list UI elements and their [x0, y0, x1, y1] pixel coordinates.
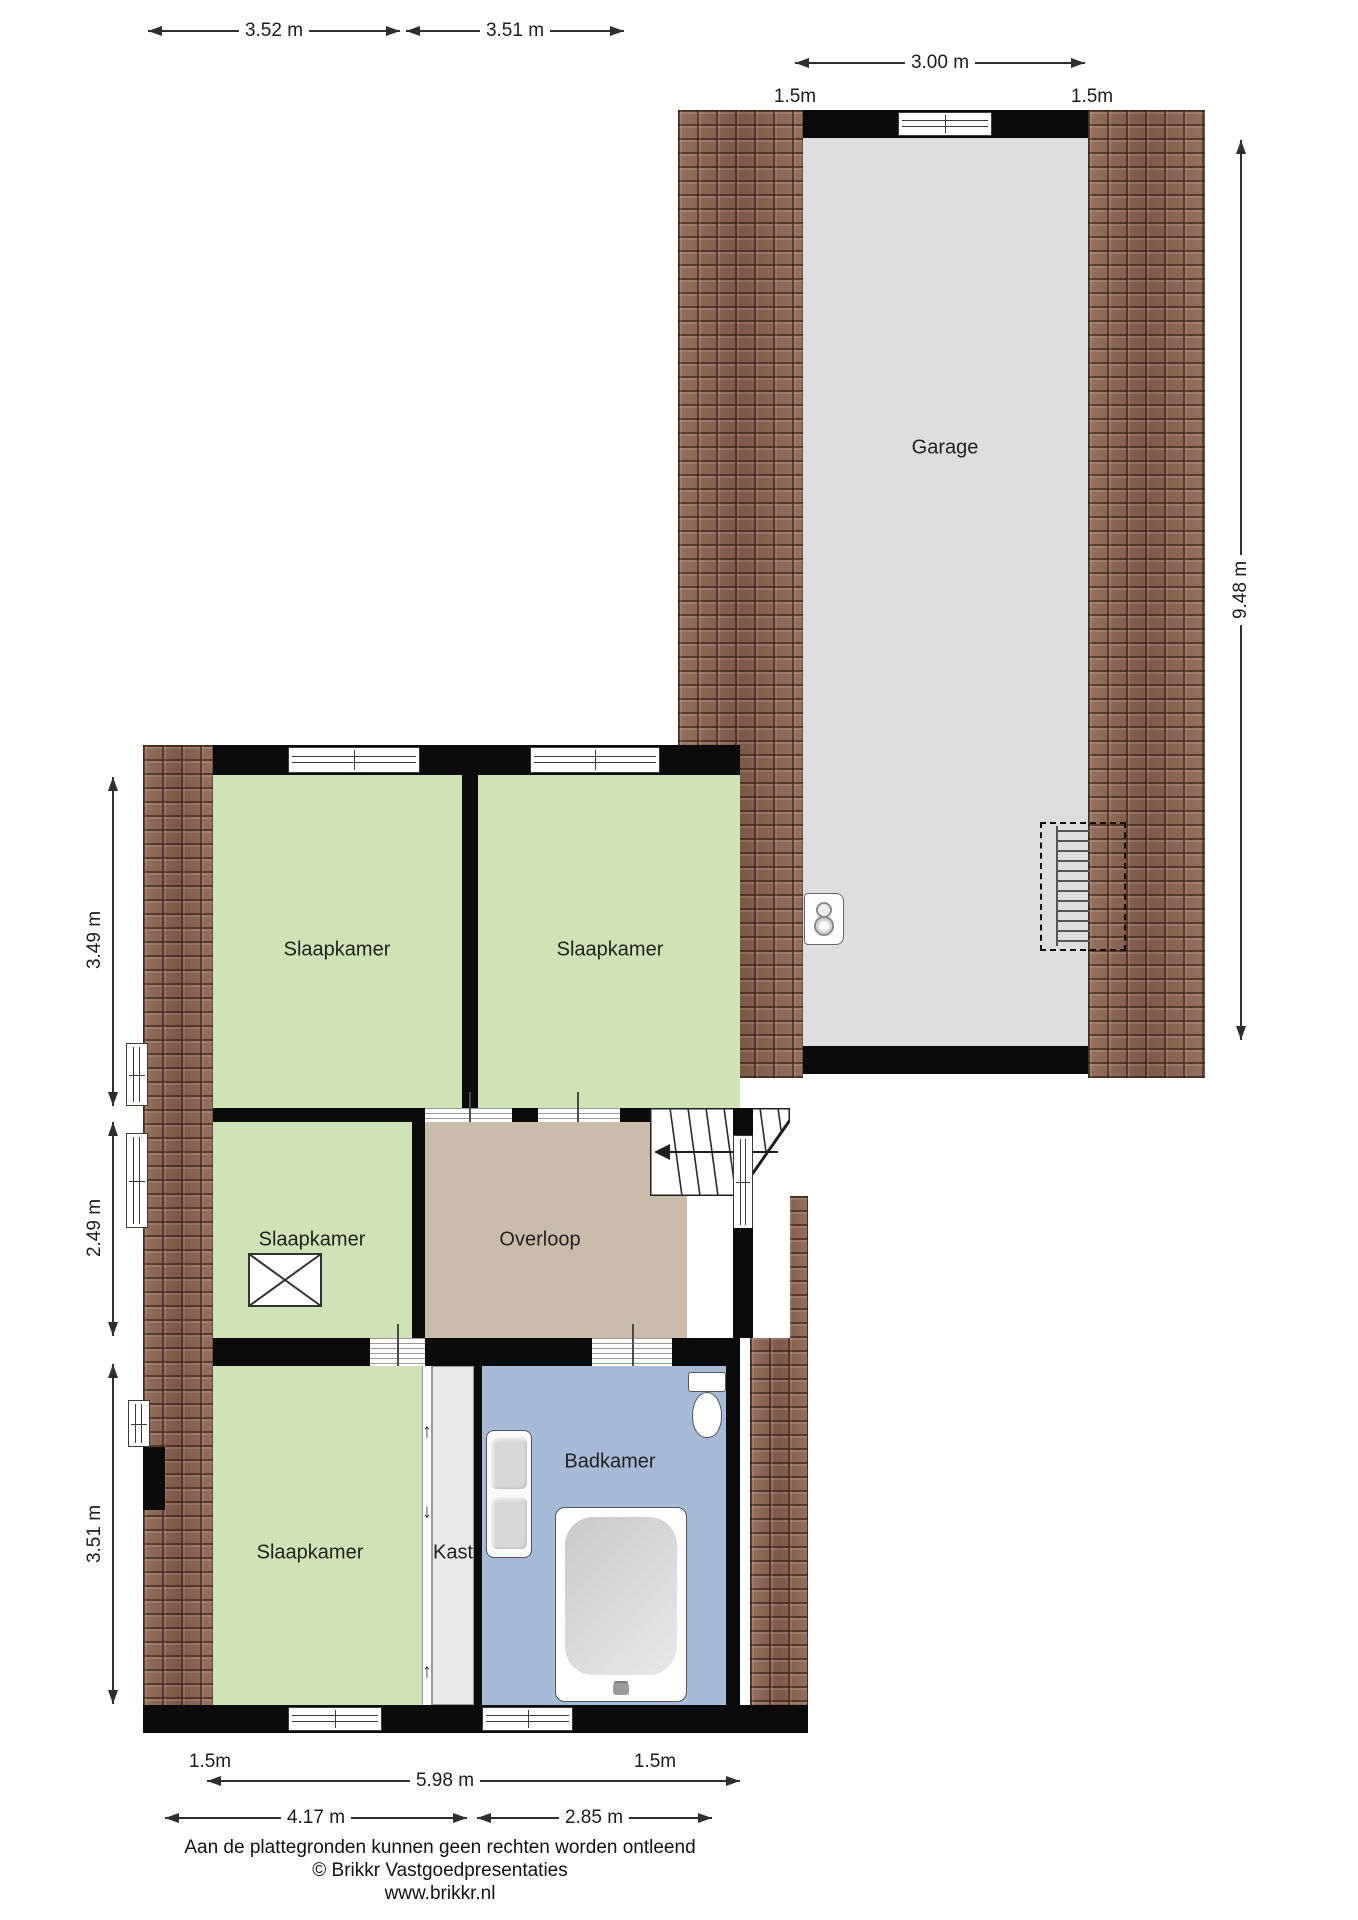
window-bedroom-bl-south: [288, 1707, 382, 1731]
arrowhead: [1236, 1026, 1246, 1040]
ladder-rail: [1056, 826, 1058, 946]
bedroom-partition-wall: [462, 775, 478, 1108]
kast-badkamer-wall: [474, 1366, 482, 1705]
room-label-overloop: Overloop: [499, 1229, 580, 1252]
room-label-slaapkamer-tr: Slaapkamer: [557, 939, 664, 962]
slope-arrow-up-icon: ↑: [422, 1661, 432, 1684]
footer: Aan de plattegronden kunnen geen rechten…: [60, 1836, 820, 1905]
shower-icon: [486, 1430, 532, 1558]
dim-label-garage-width: 3.00 m: [905, 52, 975, 74]
room-label-garage: Garage: [912, 437, 979, 460]
room-kast: [432, 1366, 474, 1705]
footer-disclaimer: Aan de plattegronden kunnen geen rechten…: [60, 1836, 820, 1859]
dim-line-house-left-1: [112, 777, 114, 1106]
right-wall-stub-bottom: [733, 1228, 753, 1338]
arrowhead: [795, 58, 809, 68]
window-bedroom-top-left: [288, 747, 420, 773]
boiler-icon: [804, 893, 844, 945]
bedroom-hall-wall: [412, 1122, 425, 1338]
window-left-lower: [126, 1133, 148, 1228]
arrowhead: [108, 777, 118, 791]
footer-website: www.brikkr.nl: [60, 1882, 820, 1905]
dim-label-garage-overhang-left: 1.5m: [774, 86, 816, 108]
dim-label-house-seg-right: 2.85 m: [559, 1807, 629, 1829]
dim-label-house-left-1: 3.49 m: [84, 905, 106, 975]
window-left-middle: [126, 1043, 148, 1106]
room-label-badkamer: Badkamer: [564, 1451, 655, 1474]
arrowhead: [108, 1690, 118, 1704]
room-label-slaapkamer-ml: Slaapkamer: [259, 1229, 366, 1252]
garage-bottom-wall: [803, 1046, 1088, 1074]
arrowhead: [477, 1813, 491, 1823]
slope-arrow-up-icon: ↑: [422, 1421, 432, 1444]
dim-label-garage-overhang-right: 1.5m: [1071, 86, 1113, 108]
room-label-kast: Kast: [433, 1542, 473, 1565]
room-slaapkamer-bottom-left: [213, 1366, 422, 1705]
boiler-pump-icon: [814, 916, 834, 936]
slope-arrow-down-icon: ↓: [422, 1501, 432, 1524]
attic-ladder-icon: [1056, 830, 1090, 942]
bathtub-icon: [555, 1507, 687, 1702]
right-wall-stub-top: [733, 1108, 753, 1138]
arrowhead: [406, 26, 420, 36]
room-label-slaapkamer-tl: Slaapkamer: [284, 939, 391, 962]
left-wall-piece: [143, 1447, 165, 1510]
arrowhead: [610, 26, 624, 36]
bathtub-basin: [565, 1517, 677, 1675]
arrowhead: [108, 1364, 118, 1378]
shower-tray: [491, 1497, 527, 1549]
arrowhead: [386, 26, 400, 36]
kast-door-strip: [422, 1366, 432, 1705]
room-label-slaapkamer-bl: Slaapkamer: [257, 1542, 364, 1565]
arrowhead: [1236, 140, 1246, 154]
dim-label-house-top-right: 3.51 m: [480, 20, 550, 42]
dim-label-house-top-left: 3.52 m: [239, 20, 309, 42]
arrowhead: [698, 1813, 712, 1823]
house-roof-left: [143, 745, 213, 1733]
arrowhead: [207, 1776, 221, 1786]
footer-copyright: © Brikkr Vastgoedpresentaties: [60, 1859, 820, 1882]
dim-line-house-left-3: [112, 1364, 114, 1704]
door-opening-bedroom-tr: [538, 1108, 620, 1122]
window-left-bottom: [128, 1400, 150, 1447]
bathtub-tap-icon: [613, 1683, 629, 1695]
arrowhead: [148, 26, 162, 36]
window-right-side: [733, 1135, 753, 1229]
arrowhead: [108, 1322, 118, 1336]
dim-line-house-left-2: [112, 1122, 114, 1336]
arrowhead: [108, 1122, 118, 1136]
dim-label-house-seg-left: 4.17 m: [281, 1807, 351, 1829]
dim-label-house-overhang-left: 1.5m: [189, 1751, 231, 1773]
dim-label-house-total: 5.98 m: [410, 1770, 480, 1792]
dim-label-house-left-2: 2.49 m: [84, 1193, 106, 1263]
window-badkamer-south: [482, 1707, 573, 1731]
arrowhead: [726, 1776, 740, 1786]
arrowhead: [1071, 58, 1085, 68]
floorplan-canvas: Garage Slaapkamer Slaapkamer Slaapkamer …: [0, 0, 1358, 1920]
shower-tray: [491, 1437, 527, 1489]
skylight-icon: [248, 1253, 322, 1307]
toilet-icon: [692, 1392, 722, 1438]
window-bedroom-top-right: [530, 747, 660, 773]
arrowhead: [165, 1813, 179, 1823]
stairs-icon: [650, 1108, 790, 1196]
dim-label-house-overhang-right: 1.5m: [634, 1751, 676, 1773]
house-bottom-wall: [143, 1705, 808, 1733]
dim-label-garage-depth: 9.48 m: [1230, 555, 1252, 625]
toilet-tank-icon: [688, 1372, 726, 1392]
house-right-wall: [726, 1338, 740, 1705]
dim-label-house-left-3: 3.51 m: [84, 1499, 106, 1569]
arrowhead: [108, 1092, 118, 1106]
arrowhead: [453, 1813, 467, 1823]
garage-window: [898, 112, 992, 136]
